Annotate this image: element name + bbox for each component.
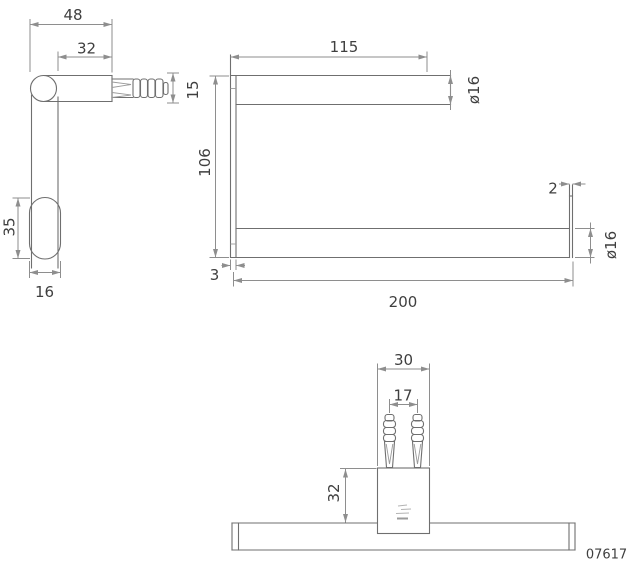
dim-side-plate-depth: 16 xyxy=(35,283,54,301)
dim-bottom-dowel-spacing: 17 xyxy=(393,387,412,405)
end-stop-pin xyxy=(570,185,573,258)
side-view-labels: 48 32 15 35 16 xyxy=(1,6,203,301)
dim-side-total-depth: 48 xyxy=(63,6,82,24)
dim-bottom-plate-width: 30 xyxy=(394,351,413,369)
wall-plate-profile xyxy=(30,198,61,260)
dim-front-bottom-bar-length: 200 xyxy=(389,293,418,311)
front-view-labels: 115 ø16 106 3 200 2 ø16 xyxy=(196,38,620,311)
front-view-outline xyxy=(231,55,573,258)
mounting-plate xyxy=(378,468,430,534)
dim-front-overall-height: 106 xyxy=(196,148,214,177)
dim-bottom-wall-offset: 32 xyxy=(325,483,343,502)
bottom-view: 30 17 32 xyxy=(232,351,575,550)
wall-plug-right xyxy=(412,415,424,468)
dim-side-arm-height: 15 xyxy=(184,80,202,99)
side-view-outline xyxy=(30,76,169,269)
bottom-view-outline xyxy=(232,415,575,551)
drawing-canvas: 48 32 15 35 16 xyxy=(0,0,630,567)
side-view-dimensions xyxy=(13,19,180,278)
dim-front-top-bar-diameter: ø16 xyxy=(465,76,483,104)
bar-cross-section xyxy=(31,76,57,102)
part-number: 07617 xyxy=(586,548,627,563)
wall-plug-ribs xyxy=(133,79,168,98)
front-view: 115 ø16 106 3 200 2 ø16 xyxy=(196,38,620,311)
dim-front-top-bar-length: 115 xyxy=(330,38,359,56)
screw-lines xyxy=(112,82,131,98)
dim-side-plate-height: 35 xyxy=(1,217,19,236)
dim-front-post-thickness: 3 xyxy=(210,266,220,284)
side-view: 48 32 15 35 16 xyxy=(1,6,203,301)
technical-drawing-sheet: 48 32 15 35 16 xyxy=(0,0,630,567)
dim-front-end-stop-thickness: 2 xyxy=(548,180,558,198)
front-view-dimensions xyxy=(210,52,595,287)
dim-front-bottom-bar-diameter: ø16 xyxy=(602,231,620,259)
dim-side-arm-depth: 32 xyxy=(77,40,96,58)
wall-plug-left xyxy=(384,415,396,468)
